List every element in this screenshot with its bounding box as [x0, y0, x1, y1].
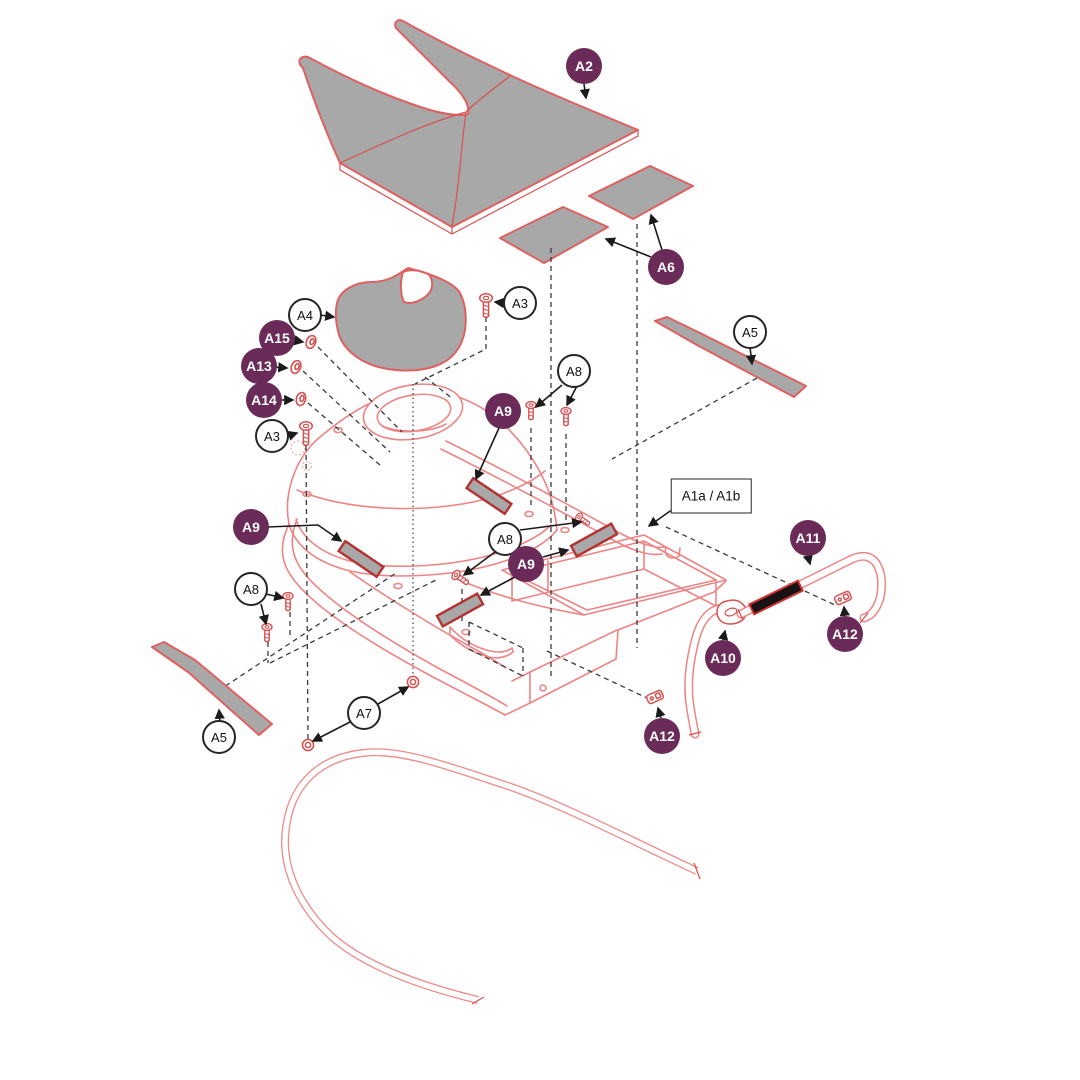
callout-a9-mid: A9 — [508, 546, 544, 582]
side-bumper — [738, 556, 882, 623]
callout-a12-right: A12 — [827, 616, 863, 652]
callout-a2: A2 — [566, 48, 602, 84]
callout-a10: A10 — [705, 640, 741, 676]
callout-a9-top: A9 — [485, 393, 521, 429]
callout-a8-top: A8 — [557, 354, 591, 388]
callout-a3-left: A3 — [255, 419, 289, 453]
reflector-patch — [749, 581, 802, 615]
callout-a4: A4 — [288, 298, 322, 332]
callout-a9-left: A9 — [233, 509, 269, 545]
callout-a6: A6 — [648, 249, 684, 285]
callout-a5-right: A5 — [733, 315, 767, 349]
callout-a7: A7 — [347, 696, 381, 730]
callout-a11: A11 — [790, 520, 826, 556]
callout-a13: A13 — [241, 348, 277, 384]
diagram-line-art — [0, 0, 1080, 1080]
callout-a1a-a1b: A1a / A1b — [671, 479, 752, 514]
bottom-bumper-loop — [285, 752, 700, 1004]
callout-a12-left: A12 — [644, 718, 680, 754]
deck — [282, 441, 726, 715]
exploded-parts-diagram: A2 A6 A4 A3 A15 A13 A14 A3 A9 A8 A5 A9 A… — [0, 0, 1080, 1080]
callout-a5-left: A5 — [202, 720, 236, 754]
tiller-boot — [336, 268, 466, 371]
callout-a14: A14 — [246, 382, 282, 418]
callout-a8-lower: A8 — [234, 572, 268, 606]
callout-a3-upper: A3 — [503, 286, 537, 320]
